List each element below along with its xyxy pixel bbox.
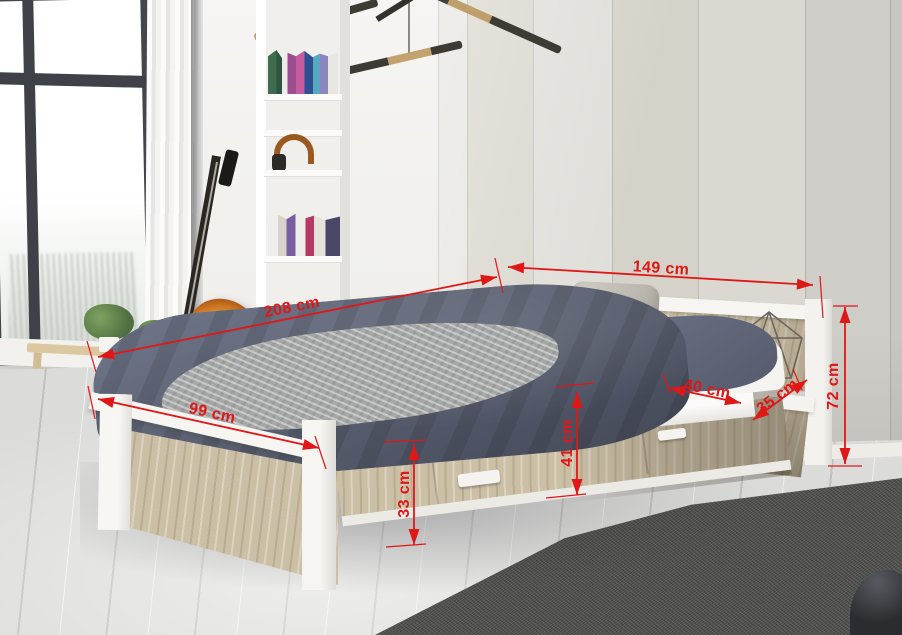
dim-bed-width [88,386,326,469]
dimension-label-frame-height: 41 cm [559,419,577,466]
dimension-overlay [0,0,902,635]
dimension-label-side-panel-height: 33 cm [396,470,414,517]
dimension-label-headboard-height: 72 cm [825,362,843,409]
product-photo-with-dimensions: 208 cm 149 cm 99 cm 33 cm 41 cm 40 cm 35… [0,0,902,635]
dimension-label-headboard-width: 149 cm [632,258,690,279]
